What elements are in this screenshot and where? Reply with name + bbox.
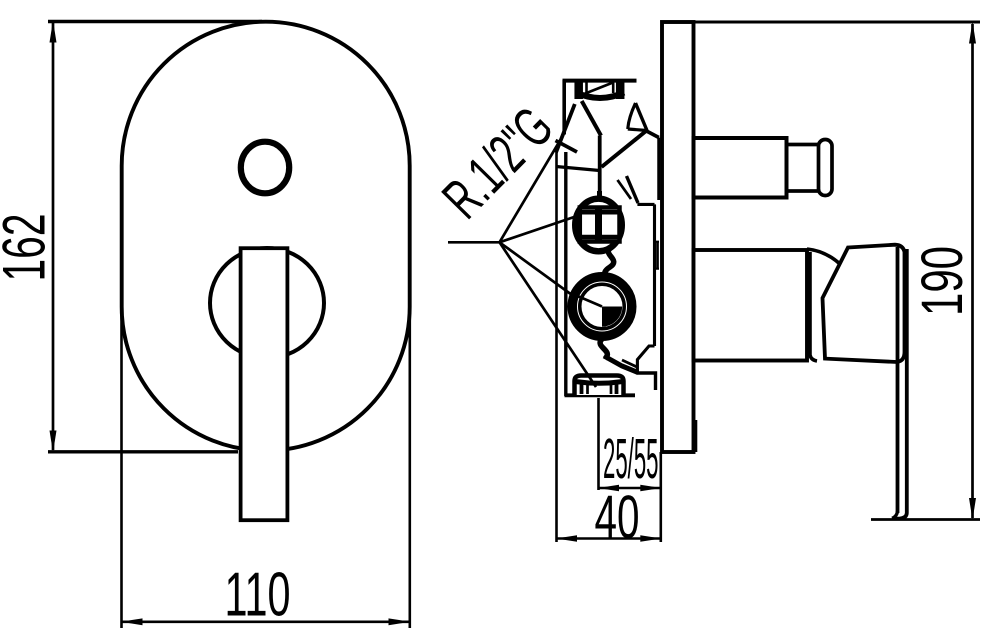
svg-text:25/55: 25/55 [603, 427, 659, 491]
svg-text:40: 40 [595, 483, 640, 552]
svg-text:190: 190 [910, 246, 975, 316]
svg-text:110: 110 [225, 561, 291, 630]
svg-text:162: 162 [0, 214, 58, 282]
svg-text:R.1/2"G: R.1/2"G [431, 95, 566, 230]
